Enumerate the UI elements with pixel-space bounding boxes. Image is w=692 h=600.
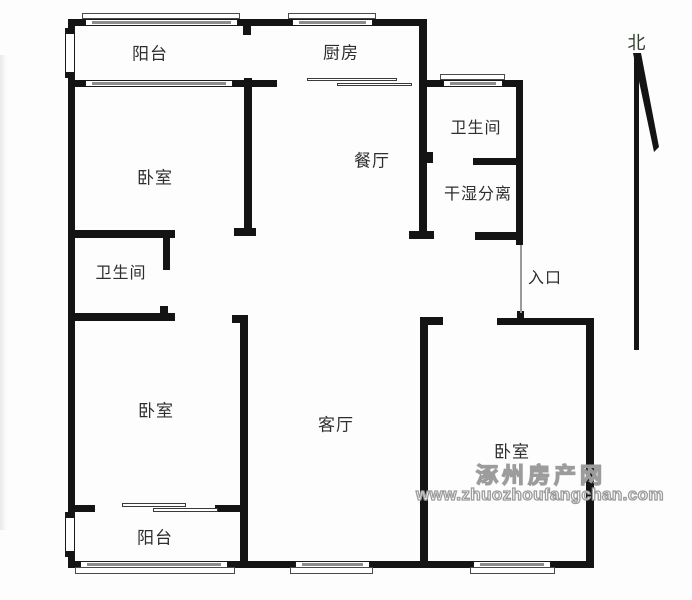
- wall-living-right-cap: [420, 317, 443, 325]
- floor-plan: 阳台 厨房 卫生间 餐厅 干湿分离 卧室 卫生间 入口 卧室 客厅 卧室 阳台 …: [0, 0, 692, 600]
- wall-living-right: [420, 317, 428, 562]
- wall-bedroom-sw-right: [240, 315, 248, 568]
- wall-bedroom-se-top: [497, 318, 594, 325]
- window-cap: [66, 551, 74, 557]
- wall-bedroom-nw-right: [244, 78, 252, 230]
- wall-kitchen-right: [419, 26, 427, 232]
- window-glass: [92, 21, 231, 24]
- room-label-living: 客厅: [318, 411, 354, 436]
- window-bathroom-top: [443, 80, 503, 87]
- wall-kitchen-right-cap: [409, 231, 434, 239]
- room-label-balcony-top: 阳台: [132, 40, 168, 65]
- wall-balcony-bottom-inner-right: [215, 505, 248, 512]
- room-label-bedroom-sw: 卧室: [138, 397, 174, 422]
- wall-drywet-bottom: [475, 232, 523, 240]
- window-cap: [66, 28, 74, 34]
- watermark-site-url: www.zhuozhoufangchan.com: [416, 485, 664, 505]
- sill-balcony-bottom: [75, 567, 235, 574]
- room-label-dry-wet: 干湿分离: [444, 180, 512, 204]
- room-label-balcony-bottom: 阳台: [137, 524, 173, 549]
- wall-left-exterior: [68, 19, 75, 568]
- scan-artifact-band: [0, 55, 7, 530]
- window-glass: [299, 21, 366, 24]
- room-label-dining: 餐厅: [354, 147, 390, 172]
- wall-bathroom-w-stub-lower: [160, 306, 168, 314]
- wall-bathroom-w-top: [68, 230, 175, 238]
- window-balcony-top-left-side: [65, 28, 75, 78]
- window-glass: [92, 82, 226, 85]
- sill-kitchen-top: [288, 13, 376, 19]
- wall-right-exterior-upper: [516, 80, 523, 245]
- window-balcony-bedroom-nw: [85, 80, 233, 87]
- wall-bedroom-sw-right-cap: [232, 315, 248, 323]
- sill-bathroom-top: [440, 74, 505, 80]
- wall-stub-balcony-kitchen: [243, 26, 251, 35]
- window-glass: [87, 563, 221, 566]
- wall-stub-dining-right: [426, 152, 433, 163]
- window-glass: [302, 563, 363, 566]
- sill-balcony-top: [82, 13, 240, 19]
- sliding-door-bedroom-sw-balcony-b: [153, 508, 218, 512]
- window-kitchen-top: [292, 19, 373, 26]
- window-balcony-top: [85, 19, 238, 26]
- wall-bathroom-w-bottom: [68, 313, 175, 321]
- room-label-kitchen: 厨房: [323, 39, 359, 64]
- wall-bedroom-se-right: [586, 318, 594, 568]
- sill-bedroom-se-bottom: [470, 567, 555, 574]
- entry-opening-line: [520, 245, 522, 313]
- north-label: 北: [628, 29, 647, 55]
- north-arrow-icon: [625, 48, 670, 353]
- sliding-door-bedroom-sw-balcony-a: [122, 503, 186, 507]
- sliding-door-kitchen-dining-b: [337, 83, 412, 86]
- wall-balcony-bottom-inner-left: [68, 505, 95, 512]
- window-glass: [450, 82, 496, 85]
- wall-bathroom-drywet-divider: [473, 158, 516, 165]
- room-label-bathroom-w: 卫生间: [95, 259, 146, 283]
- window-glass: [480, 563, 544, 566]
- room-label-bathroom-top: 卫生间: [450, 114, 501, 138]
- wall-bathroom-w-stub-upper: [163, 238, 170, 270]
- window-cap: [66, 72, 74, 78]
- entrance-label: 入口: [528, 264, 562, 288]
- room-label-bedroom-nw: 卧室: [137, 164, 173, 189]
- sliding-door-kitchen-dining-a: [307, 78, 397, 81]
- sill-living-bottom: [290, 567, 373, 574]
- window-cap: [66, 512, 74, 518]
- wall-bedroom-nw-right-cap: [234, 228, 256, 236]
